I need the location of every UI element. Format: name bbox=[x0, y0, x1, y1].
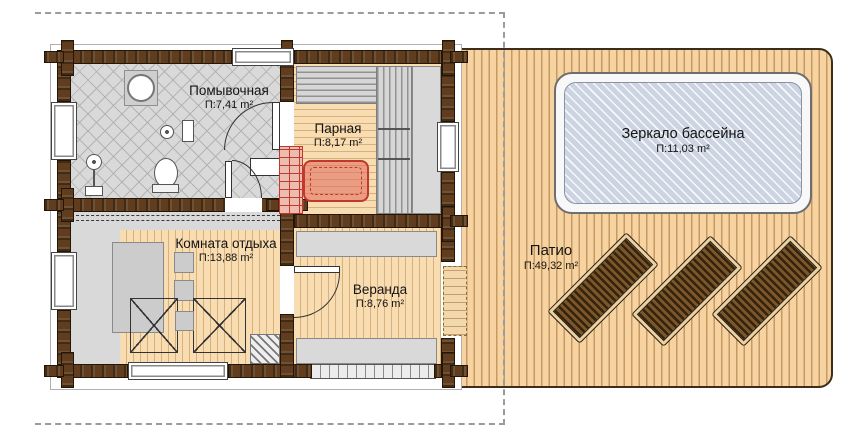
label-veranda: Веранда П:8,76 m² bbox=[353, 282, 407, 311]
room-name: Патио bbox=[524, 242, 578, 260]
wall-divider-right bbox=[294, 214, 455, 228]
room-name: Зеркало бассейна bbox=[621, 126, 744, 143]
door-rest-washing-leaf bbox=[225, 161, 232, 198]
label-washing: Помывочная П:7,41 m² bbox=[189, 83, 269, 112]
window-right bbox=[437, 122, 459, 172]
wall-center-d bbox=[280, 314, 294, 378]
bench-step-mark bbox=[378, 128, 410, 130]
wall-bottom-b bbox=[228, 364, 312, 378]
log-joint bbox=[450, 215, 468, 227]
toilet-tank bbox=[152, 184, 179, 193]
floor-plan-canvas: Помывочная П:7,41 m² Парная П:8,17 m² Ко… bbox=[0, 0, 850, 446]
label-patio: Патио П:49,32 m² bbox=[524, 242, 578, 273]
log-joint bbox=[44, 51, 64, 63]
label-steam: Парная П:8,17 m² bbox=[314, 121, 362, 150]
loft-edge-dashed bbox=[71, 215, 280, 221]
steam-bench-right bbox=[376, 66, 412, 214]
room-area: П:8,76 m² bbox=[353, 298, 407, 311]
room-area: П:8,17 m² bbox=[314, 137, 362, 150]
shower-head bbox=[127, 74, 155, 102]
log-joint bbox=[450, 365, 468, 377]
room-area: П:13,88 m² bbox=[175, 252, 276, 265]
log-joint bbox=[450, 51, 468, 63]
veranda-bench-bottom bbox=[296, 338, 437, 364]
label-rest: Комната отдыха П:13,88 m² bbox=[175, 236, 276, 265]
door-rest-washing-gap bbox=[225, 198, 262, 212]
sink-fixture bbox=[182, 120, 194, 142]
room-name: Помывочная bbox=[189, 83, 269, 99]
corner-hatch bbox=[250, 334, 280, 364]
patio-step bbox=[443, 266, 467, 336]
room-area: П:7,41 m² bbox=[189, 99, 269, 112]
folding-chair bbox=[193, 298, 246, 353]
room-area: П:11,03 m² bbox=[621, 143, 744, 156]
bench-step-mark bbox=[378, 158, 410, 160]
room-area: П:49,32 m² bbox=[524, 260, 578, 273]
window-top bbox=[232, 48, 294, 66]
room-name: Комната отдыха bbox=[175, 236, 276, 252]
folding-chair bbox=[130, 298, 178, 353]
sauna-stove-bench bbox=[303, 160, 369, 202]
coffee-table bbox=[175, 311, 194, 331]
door-rest-veranda-leaf bbox=[294, 266, 340, 273]
room-name: Веранда bbox=[353, 282, 407, 298]
faucet-fixture bbox=[86, 154, 102, 170]
label-pool: Зеркало бассейна П:11,03 m² bbox=[621, 126, 744, 156]
room-name: Парная bbox=[314, 121, 362, 137]
wall-top-left bbox=[57, 50, 232, 64]
veranda-steps bbox=[310, 364, 436, 379]
faucet-stem bbox=[93, 170, 95, 186]
sauna-stove-chimney bbox=[279, 146, 303, 214]
door-washing-steam-leaf bbox=[272, 102, 280, 150]
veranda-bench-top bbox=[296, 231, 437, 257]
log-joint bbox=[44, 365, 64, 377]
faucet-base bbox=[85, 186, 103, 196]
log-joint bbox=[44, 199, 64, 211]
window-bottom bbox=[128, 362, 228, 380]
wall-top-right bbox=[294, 50, 452, 64]
window-left-lower bbox=[51, 252, 77, 310]
window-left-upper bbox=[51, 102, 77, 160]
drain-fixture bbox=[160, 125, 174, 139]
sauna-stove-inner bbox=[310, 167, 362, 195]
